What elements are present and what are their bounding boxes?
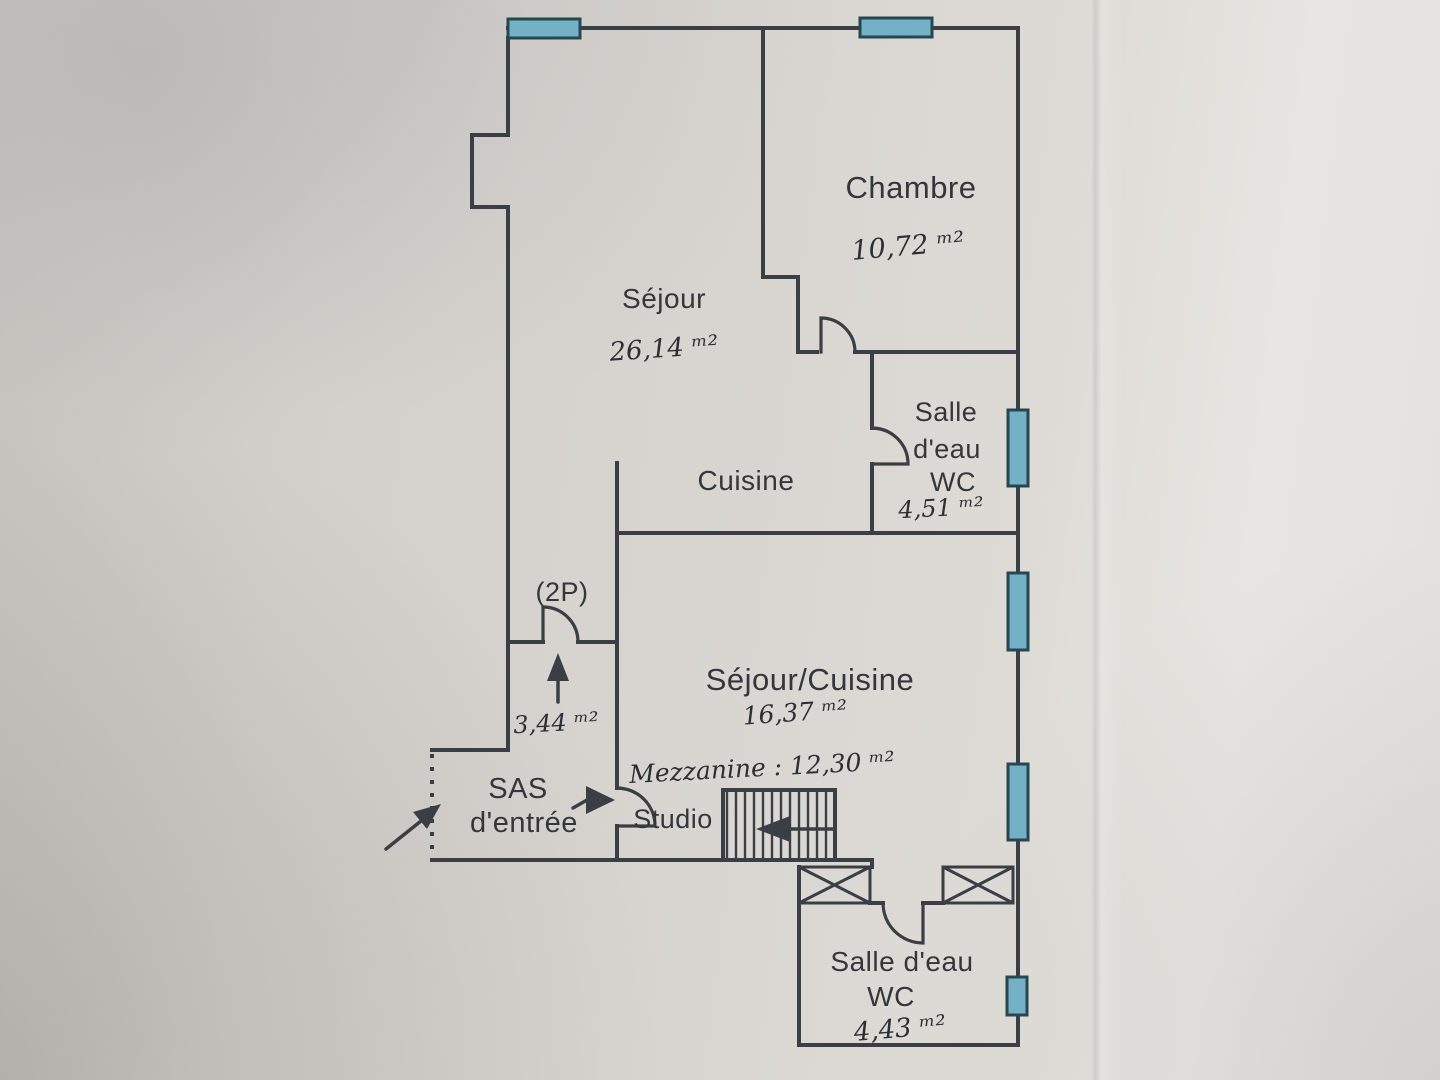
room-label-sas-1: SAS — [488, 773, 548, 805]
area-sejour: 26,14 ᵐ² — [607, 330, 719, 368]
cross-box-left — [799, 867, 870, 903]
entrance-arrow-tail — [386, 821, 421, 849]
room-label-sejour-cuisine: Séjour/Cuisine — [706, 662, 915, 697]
area-salle-eau-bas: 4,43 ᵐ² — [852, 1010, 948, 1048]
room-label-salle-eau-haut-1: Salle — [915, 397, 978, 427]
studio-arrow-head — [586, 786, 615, 814]
room-label-chambre: Chambre — [846, 170, 977, 205]
up-arrow-2p — [547, 653, 569, 702]
window-marker-salle-eau-haut — [1008, 410, 1028, 486]
area-salle-eau-haut: 4,51 ᵐ² — [897, 492, 985, 524]
room-label-sejour: Séjour — [622, 283, 706, 314]
floor-plan-photo: { "plan": { "rooms": { "chambre": { "nam… — [0, 0, 1440, 1080]
room-label-salle-eau-bas-2: WC — [867, 981, 915, 1012]
door-salle-eau-bas — [883, 903, 923, 943]
window-marker-salle-eau-bas — [1007, 977, 1027, 1015]
window-marker-sejour-cuisine-2 — [1008, 764, 1028, 840]
area-sas: 3,44 ᵐ² — [513, 707, 600, 739]
room-label-2p: (2P) — [535, 577, 588, 607]
entrance-arrow — [386, 804, 441, 849]
room-label-sas-2: d'entrée — [470, 807, 578, 839]
window-marker-sejour-cuisine-1 — [1008, 573, 1028, 650]
cross-box-right — [943, 867, 1013, 903]
room-label-cuisine: Cuisine — [698, 465, 795, 496]
door-2p — [543, 607, 578, 642]
wall-left-with-notch — [432, 38, 508, 750]
wall-sejour-chambre-divider — [763, 28, 798, 352]
room-label-salle-eau-haut-2: d'eau — [913, 434, 981, 464]
up-arrow-head — [547, 653, 569, 681]
floor-plan-drawing: Chambre Séjour Cuisine Salle d'eau WC (2… — [0, 0, 1440, 1080]
window-marker-top-right — [860, 18, 932, 37]
door-salle-eau-haut — [872, 428, 908, 464]
room-label-studio: Studio — [633, 804, 713, 834]
area-chambre: 10,72 ᵐ² — [850, 226, 966, 267]
cross-box-diagonals — [799, 867, 870, 903]
room-label-salle-eau-bas-1: Salle d'eau — [830, 946, 973, 977]
studio-arrow — [573, 786, 615, 814]
note-mezzanine: Mezzanine : 12,30 ᵐ² — [627, 746, 895, 789]
door-chambre — [821, 318, 855, 352]
cross-box-diagonals — [943, 867, 1013, 903]
area-sejour-cuisine: 16,37 ᵐ² — [742, 694, 849, 730]
window-marker-top-left — [508, 19, 580, 38]
